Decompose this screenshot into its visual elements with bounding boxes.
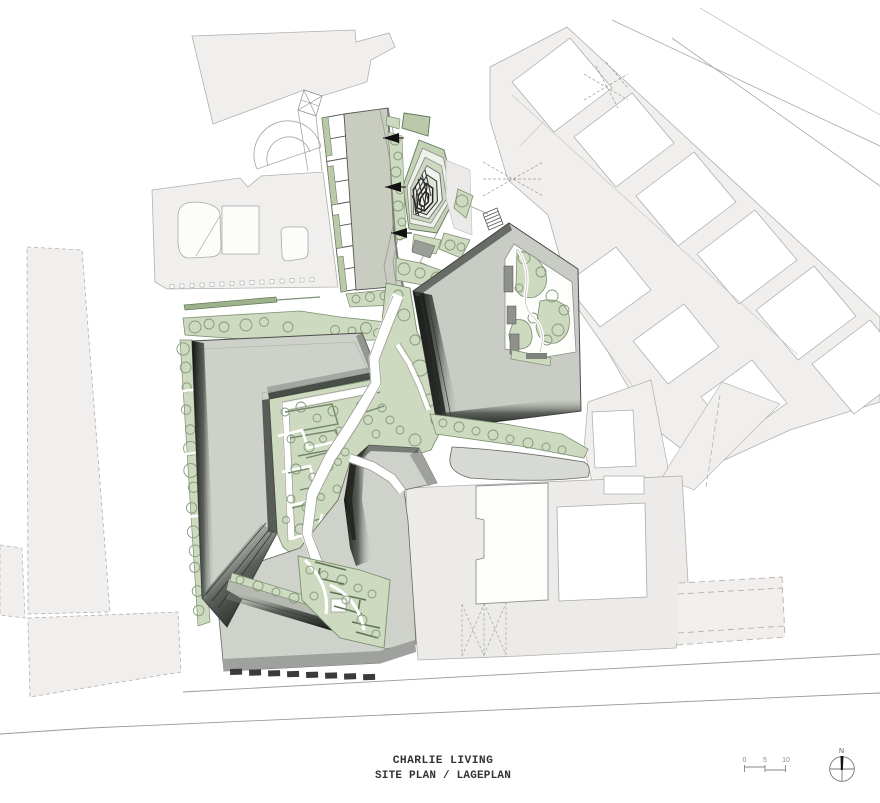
svg-text:10: 10 xyxy=(782,757,790,764)
svg-text:SITE PLAN / LAGEPLAN: SITE PLAN / LAGEPLAN xyxy=(375,770,511,782)
svg-text:5: 5 xyxy=(763,757,767,764)
svg-text:0: 0 xyxy=(743,757,747,764)
svg-text:CHARLIE LIVING: CHARLIE LIVING xyxy=(393,755,494,767)
svg-text:N: N xyxy=(839,748,844,755)
